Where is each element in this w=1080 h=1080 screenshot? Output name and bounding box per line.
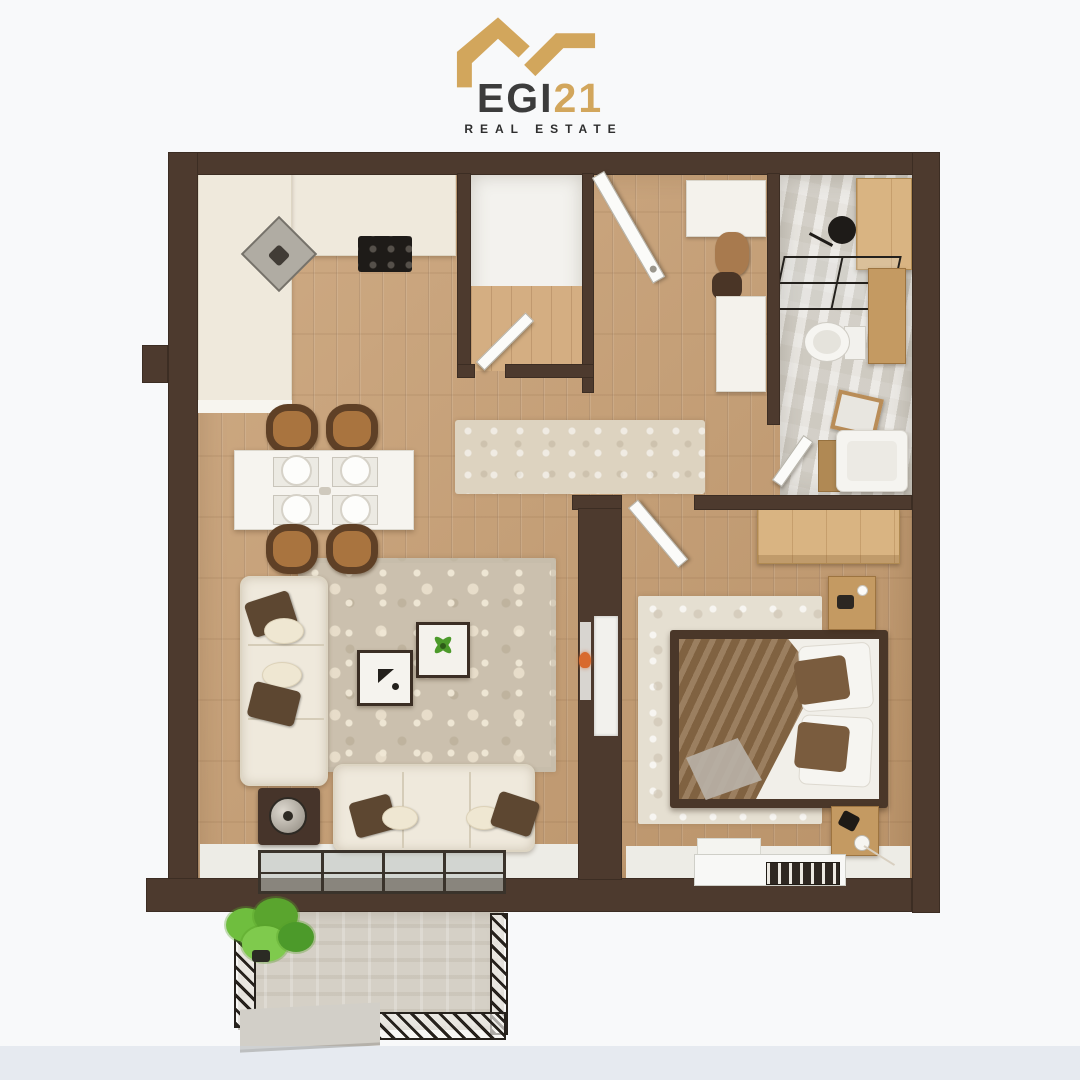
wall-top bbox=[168, 152, 940, 175]
nightstand-decor bbox=[837, 595, 854, 609]
nightstand-top bbox=[828, 576, 876, 630]
nightstand-decor bbox=[837, 810, 860, 833]
accent-cushion bbox=[794, 721, 851, 772]
scan-artifact-band bbox=[0, 1046, 1080, 1080]
accent-cushion bbox=[793, 655, 851, 706]
plant-center bbox=[440, 643, 446, 649]
plate bbox=[340, 455, 371, 486]
dining-chair bbox=[266, 404, 318, 454]
bedroom-wall-top bbox=[694, 495, 912, 510]
brand-name-right: 21 bbox=[554, 75, 604, 121]
brand-name-left: EGI bbox=[477, 75, 554, 121]
table-decor-dot bbox=[392, 683, 399, 690]
lamp-center bbox=[283, 811, 293, 821]
plate bbox=[281, 455, 312, 486]
throw-pillow-cream bbox=[382, 806, 418, 830]
toilet-bowl bbox=[813, 330, 841, 354]
shower-head bbox=[828, 216, 856, 244]
wall-panel bbox=[594, 616, 618, 736]
sofa-seam bbox=[248, 644, 324, 646]
shower-bench bbox=[868, 268, 906, 364]
closet-wall-bottom bbox=[505, 364, 594, 378]
washbasin bbox=[836, 430, 908, 492]
wall-pilaster bbox=[142, 345, 168, 383]
floor-plan-render: EGI21 REAL ESTATE bbox=[0, 0, 1080, 1080]
balcony-bench bbox=[240, 1002, 380, 1049]
hall-decor bbox=[715, 232, 749, 276]
wardrobe-edge bbox=[758, 555, 899, 563]
plant-leaves bbox=[278, 922, 314, 952]
cooktop bbox=[358, 236, 412, 272]
throw-pillow-cream bbox=[264, 618, 304, 644]
nightstand-bottom bbox=[831, 806, 879, 856]
hall-console bbox=[716, 296, 766, 392]
door-handle bbox=[648, 264, 658, 274]
closet-wall-left bbox=[457, 173, 471, 378]
wall-left bbox=[168, 152, 198, 882]
nightstand-lamp bbox=[857, 585, 868, 596]
closet-wall-right bbox=[582, 173, 594, 393]
coffee-table-small bbox=[357, 650, 413, 706]
dining-chair bbox=[266, 524, 318, 574]
radiator bbox=[766, 862, 840, 885]
plate bbox=[281, 494, 312, 525]
bathroom-wall bbox=[767, 173, 780, 425]
double-bed bbox=[670, 630, 888, 808]
dining-table bbox=[234, 450, 414, 530]
closet-wall-bottom-stub bbox=[457, 364, 475, 378]
coffee-table-large bbox=[416, 622, 470, 678]
table-decor-geometric bbox=[378, 669, 394, 683]
sink-basin bbox=[268, 244, 291, 267]
balcony-sliding-door bbox=[258, 850, 506, 894]
brand-subtitle: REAL ESTATE bbox=[420, 122, 660, 136]
wall-right bbox=[912, 152, 940, 913]
table-decor bbox=[319, 487, 331, 495]
brand-logo: EGI21 REAL ESTATE bbox=[420, 12, 660, 136]
basin-inner bbox=[847, 441, 897, 481]
fireplace-flame bbox=[579, 652, 591, 668]
wardrobe bbox=[757, 508, 900, 564]
door-rail bbox=[261, 872, 503, 874]
plate bbox=[340, 494, 371, 525]
lamp-side-table bbox=[258, 788, 320, 845]
brand-name: EGI21 bbox=[420, 78, 660, 119]
plant-pot bbox=[252, 950, 270, 962]
dining-chair bbox=[326, 404, 378, 454]
dining-chair bbox=[326, 524, 378, 574]
hall-cabinet bbox=[686, 180, 766, 237]
hall-runner-rug bbox=[455, 420, 705, 494]
balcony-plant bbox=[222, 898, 320, 972]
toilet bbox=[804, 322, 850, 362]
